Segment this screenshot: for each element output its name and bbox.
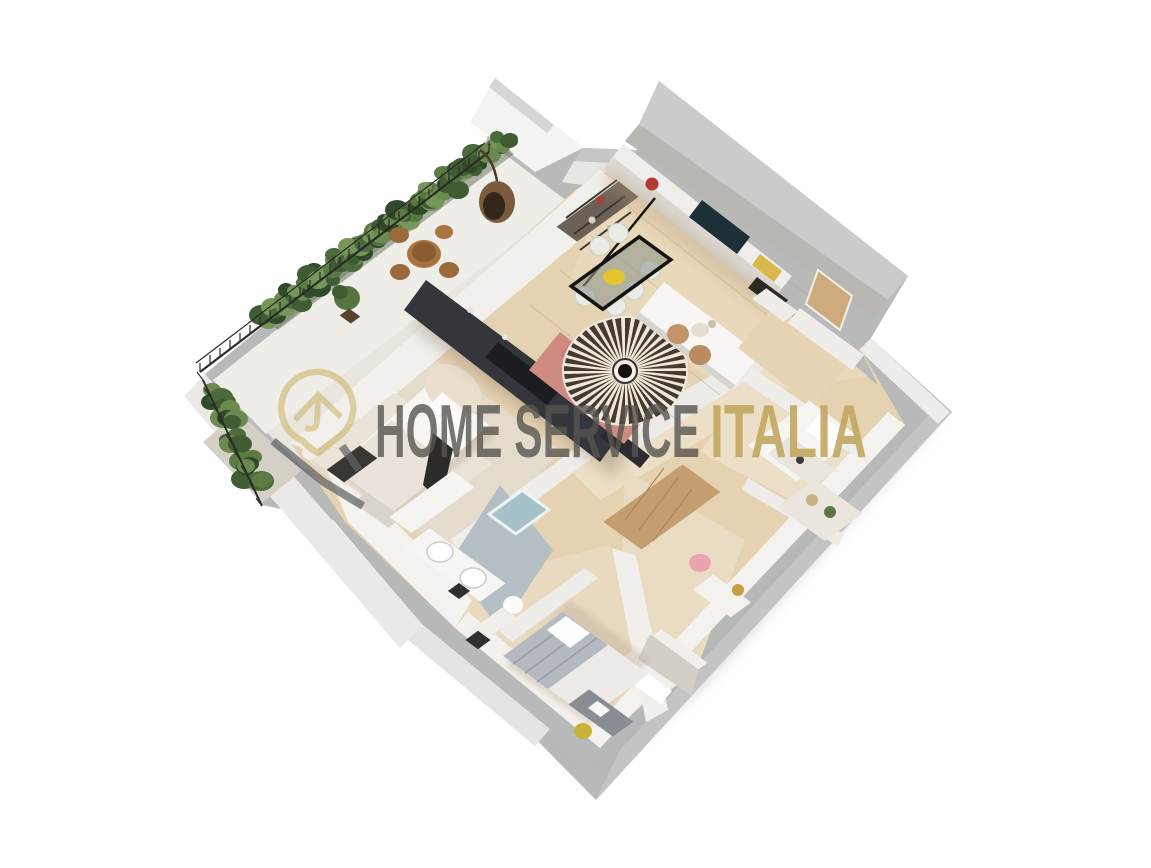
svg-text:ITALIA: ITALIA	[710, 389, 867, 473]
svg-text:HOME SERVICE: HOME SERVICE	[375, 389, 700, 473]
